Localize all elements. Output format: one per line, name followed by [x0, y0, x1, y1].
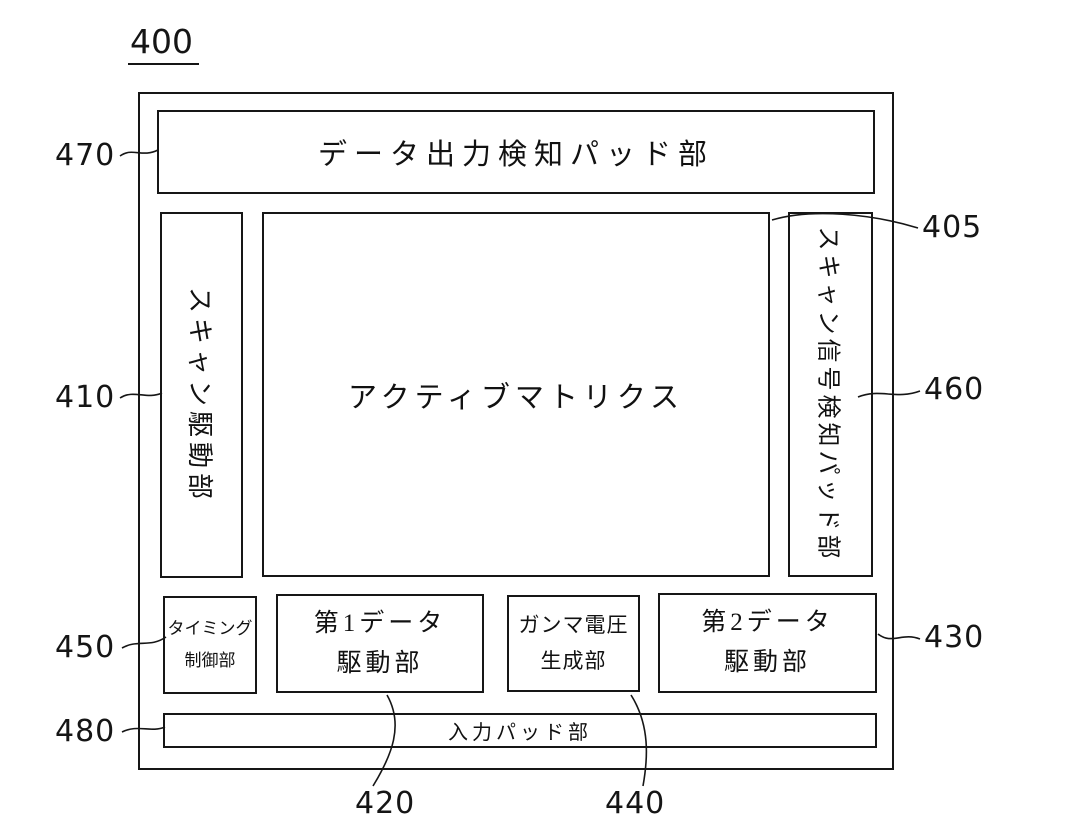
block-scan-signal-pad: スキャン信号検知パッド部	[788, 212, 873, 577]
ref-450: 450	[55, 630, 115, 665]
block-timing-controller-line1: タイミング	[168, 613, 253, 645]
block-gamma-generator-line1: ガンマ電圧	[519, 608, 629, 644]
block-first-data-driver-line2: 駆動部	[336, 644, 423, 684]
block-gamma-generator: ガンマ電圧 生成部	[507, 595, 640, 692]
block-scan-signal-pad-label: スキャン信号検知パッド部	[813, 227, 848, 563]
block-active-matrix: アクティブマトリクス	[262, 212, 770, 577]
ref-410: 410	[55, 380, 115, 415]
block-timing-controller-line2: 制御部	[185, 645, 236, 677]
ref-430: 430	[924, 620, 984, 655]
ref-440: 440	[605, 786, 665, 821]
block-data-output-pad: データ出力検知パッド部	[157, 110, 875, 194]
block-second-data-driver-line2: 駆動部	[724, 643, 811, 683]
block-first-data-driver: 第1データ 駆動部	[276, 594, 484, 693]
block-second-data-driver-line1: 第2データ	[701, 603, 834, 643]
ref-405: 405	[922, 210, 982, 245]
ref-470: 470	[55, 138, 115, 173]
block-data-output-pad-label: データ出力検知パッド部	[318, 131, 714, 173]
block-scan-driver: スキャン駆動部	[160, 212, 243, 578]
block-scan-driver-label: スキャン駆動部	[183, 286, 220, 503]
block-first-data-driver-line1: 第1データ	[314, 604, 447, 644]
block-second-data-driver: 第2データ 駆動部	[658, 593, 877, 693]
block-active-matrix-label: アクティブマトリクス	[348, 374, 684, 416]
block-timing-controller: タイミング 制御部	[163, 596, 257, 694]
figure-canvas: 400 データ出力検知パッド部 スキャン駆動部 アクティブマトリクス スキャン信…	[0, 0, 1087, 835]
block-input-pad-label: 入力パッド部	[448, 716, 592, 745]
figure-number: 400	[128, 22, 199, 65]
ref-460: 460	[924, 372, 984, 407]
ref-480: 480	[55, 714, 115, 749]
ref-420: 420	[355, 786, 415, 821]
block-gamma-generator-line2: 生成部	[541, 644, 607, 680]
block-input-pad: 入力パッド部	[163, 713, 877, 748]
